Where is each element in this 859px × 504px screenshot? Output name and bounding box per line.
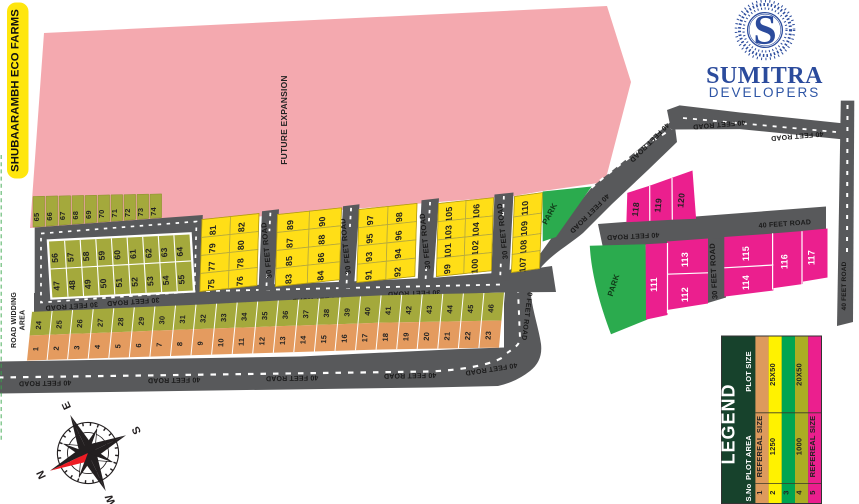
svg-text:80: 80 <box>236 240 246 251</box>
svg-text:DEVELOPERS: DEVELOPERS <box>709 85 821 100</box>
svg-text:114: 114 <box>741 275 751 290</box>
svg-text:88: 88 <box>316 234 326 245</box>
svg-text:110: 110 <box>520 200 531 216</box>
svg-text:77: 77 <box>207 261 217 272</box>
svg-text:78: 78 <box>235 258 245 269</box>
svg-text:30: 30 <box>157 315 166 324</box>
svg-text:23: 23 <box>483 331 492 340</box>
svg-text:86: 86 <box>316 252 326 263</box>
svg-text:91: 91 <box>363 269 373 280</box>
svg-text:53: 53 <box>145 276 156 286</box>
svg-text:99: 99 <box>442 263 452 274</box>
svg-text:120: 120 <box>675 192 686 208</box>
svg-text:AREA: AREA <box>20 310 27 331</box>
svg-text:14: 14 <box>298 335 307 345</box>
svg-text:89: 89 <box>285 219 295 230</box>
svg-text:93: 93 <box>364 251 374 262</box>
svg-text:22: 22 <box>463 331 472 340</box>
svg-text:24: 24 <box>34 320 43 330</box>
svg-text:50: 50 <box>98 278 109 288</box>
svg-text:2: 2 <box>768 490 777 494</box>
svg-text:19: 19 <box>401 332 410 341</box>
svg-text:26: 26 <box>75 319 84 328</box>
svg-text:74: 74 <box>149 207 158 216</box>
svg-text:72: 72 <box>123 208 132 217</box>
svg-text:85: 85 <box>284 255 294 266</box>
svg-text:47: 47 <box>51 281 62 291</box>
svg-text:5: 5 <box>113 344 122 349</box>
svg-text:15: 15 <box>319 335 328 344</box>
svg-text:16: 16 <box>340 334 349 343</box>
svg-text:40 FEET ROAD: 40 FEET ROAD <box>841 261 848 310</box>
svg-text:98: 98 <box>394 212 404 223</box>
svg-text:92: 92 <box>392 266 402 277</box>
svg-text:21: 21 <box>442 331 451 340</box>
svg-text:34: 34 <box>239 311 248 321</box>
svg-text:66: 66 <box>45 212 54 221</box>
svg-text:S: S <box>753 8 776 54</box>
svg-text:SHUBAARAMBH ECO FARMS: SHUBAARAMBH ECO FARMS <box>9 9 21 172</box>
svg-text:28: 28 <box>116 317 125 326</box>
svg-text:36: 36 <box>281 310 290 319</box>
svg-text:31: 31 <box>178 315 187 324</box>
svg-text:73: 73 <box>136 208 145 217</box>
svg-text:56: 56 <box>50 253 61 263</box>
svg-text:2: 2 <box>52 346 61 351</box>
svg-text:115: 115 <box>741 246 751 261</box>
svg-text:5: 5 <box>808 490 817 494</box>
svg-text:55: 55 <box>176 274 187 284</box>
svg-text:20X50: 20X50 <box>795 363 804 386</box>
svg-text:PLOT AREA: PLOT AREA <box>744 435 753 480</box>
svg-text:95: 95 <box>364 233 374 244</box>
svg-text:94: 94 <box>393 248 403 259</box>
svg-text:96: 96 <box>393 230 403 241</box>
svg-text:75: 75 <box>206 279 216 290</box>
svg-text:60: 60 <box>112 249 123 259</box>
svg-text:1: 1 <box>31 347 40 352</box>
svg-text:9: 9 <box>196 341 205 346</box>
svg-text:25X50: 25X50 <box>768 363 777 386</box>
svg-text:67: 67 <box>58 211 67 220</box>
svg-text:40 FEET ROAD: 40 FEET ROAD <box>266 374 319 382</box>
svg-text:62: 62 <box>143 248 154 258</box>
svg-text:59: 59 <box>96 250 107 260</box>
svg-text:40 FEET ROAD: 40 FEET ROAD <box>384 371 437 379</box>
svg-text:12: 12 <box>257 337 266 346</box>
svg-text:27: 27 <box>96 318 105 327</box>
svg-text:45: 45 <box>466 304 475 313</box>
svg-text:REFEREAL SIZE: REFEREAL SIZE <box>808 416 817 478</box>
svg-text:17: 17 <box>360 333 369 342</box>
svg-text:65: 65 <box>32 213 41 222</box>
svg-text:8: 8 <box>175 342 184 347</box>
svg-text:REFEREAL SIZE: REFEREAL SIZE <box>755 416 764 478</box>
svg-text:W: W <box>103 492 119 504</box>
svg-text:40 FEET ROAD: 40 FEET ROAD <box>19 379 72 387</box>
svg-text:33: 33 <box>219 313 228 322</box>
svg-text:3: 3 <box>781 490 790 494</box>
svg-text:69: 69 <box>84 210 93 219</box>
svg-text:20: 20 <box>422 332 431 341</box>
svg-text:82: 82 <box>236 222 246 233</box>
svg-text:64: 64 <box>174 246 185 256</box>
svg-text:44: 44 <box>445 304 454 314</box>
svg-text:4: 4 <box>795 490 804 495</box>
svg-text:112: 112 <box>680 287 690 302</box>
svg-text:57: 57 <box>65 252 76 262</box>
svg-text:71: 71 <box>110 209 119 218</box>
svg-text:54: 54 <box>160 275 171 285</box>
svg-text:3: 3 <box>72 345 81 350</box>
svg-text:LEGEND: LEGEND <box>719 383 739 464</box>
svg-text:S.No: S.No <box>744 483 753 501</box>
svg-text:41: 41 <box>383 306 392 315</box>
svg-text:E: E <box>60 400 74 412</box>
svg-text:38: 38 <box>322 309 331 318</box>
svg-text:79: 79 <box>207 243 217 254</box>
svg-text:37: 37 <box>301 309 310 318</box>
svg-text:42: 42 <box>404 305 413 314</box>
svg-text:11: 11 <box>237 337 246 346</box>
svg-text:109: 109 <box>519 220 530 237</box>
svg-text:51: 51 <box>114 277 125 287</box>
svg-text:90: 90 <box>317 216 327 227</box>
svg-text:70: 70 <box>97 210 106 219</box>
svg-text:46: 46 <box>486 304 495 313</box>
svg-text:40 FEET ROAD: 40 FEET ROAD <box>148 376 201 384</box>
svg-text:58: 58 <box>81 251 92 261</box>
svg-text:97: 97 <box>365 215 375 226</box>
svg-text:39: 39 <box>342 308 351 317</box>
svg-text:10: 10 <box>216 338 225 347</box>
svg-text:63: 63 <box>159 247 170 257</box>
svg-text:40: 40 <box>363 307 372 316</box>
svg-text:49: 49 <box>82 279 93 289</box>
svg-text:52: 52 <box>129 277 140 287</box>
svg-text:32: 32 <box>198 314 207 323</box>
svg-text:PLOT SIZE: PLOT SIZE <box>744 351 753 392</box>
svg-text:1250: 1250 <box>768 438 777 456</box>
svg-text:48: 48 <box>67 280 78 290</box>
svg-text:25: 25 <box>54 320 63 329</box>
svg-text:81: 81 <box>208 225 218 236</box>
svg-text:6: 6 <box>134 343 143 348</box>
svg-text:117: 117 <box>807 250 817 265</box>
svg-text:N: N <box>35 468 49 480</box>
svg-text:87: 87 <box>284 237 294 248</box>
svg-text:7: 7 <box>155 342 164 347</box>
svg-text:29: 29 <box>137 316 146 325</box>
svg-text:68: 68 <box>71 211 80 220</box>
svg-text:S: S <box>130 424 144 436</box>
svg-text:18: 18 <box>381 333 390 342</box>
svg-text:35: 35 <box>260 311 269 320</box>
svg-text:111: 111 <box>649 277 659 292</box>
svg-text:43: 43 <box>425 305 434 314</box>
svg-text:ROAD WIDDING: ROAD WIDDING <box>11 292 18 348</box>
svg-text:FUTURE EXPANSION: FUTURE EXPANSION <box>279 75 289 164</box>
svg-text:84: 84 <box>315 270 325 281</box>
svg-text:83: 83 <box>283 273 293 284</box>
svg-text:118: 118 <box>630 202 641 217</box>
svg-text:1: 1 <box>755 490 764 494</box>
svg-text:76: 76 <box>235 276 245 287</box>
svg-text:1000: 1000 <box>795 438 804 456</box>
svg-text:61: 61 <box>128 249 139 259</box>
svg-text:113: 113 <box>680 252 690 267</box>
svg-text:13: 13 <box>278 336 287 345</box>
svg-text:119: 119 <box>652 198 663 213</box>
svg-text:116: 116 <box>780 254 790 269</box>
